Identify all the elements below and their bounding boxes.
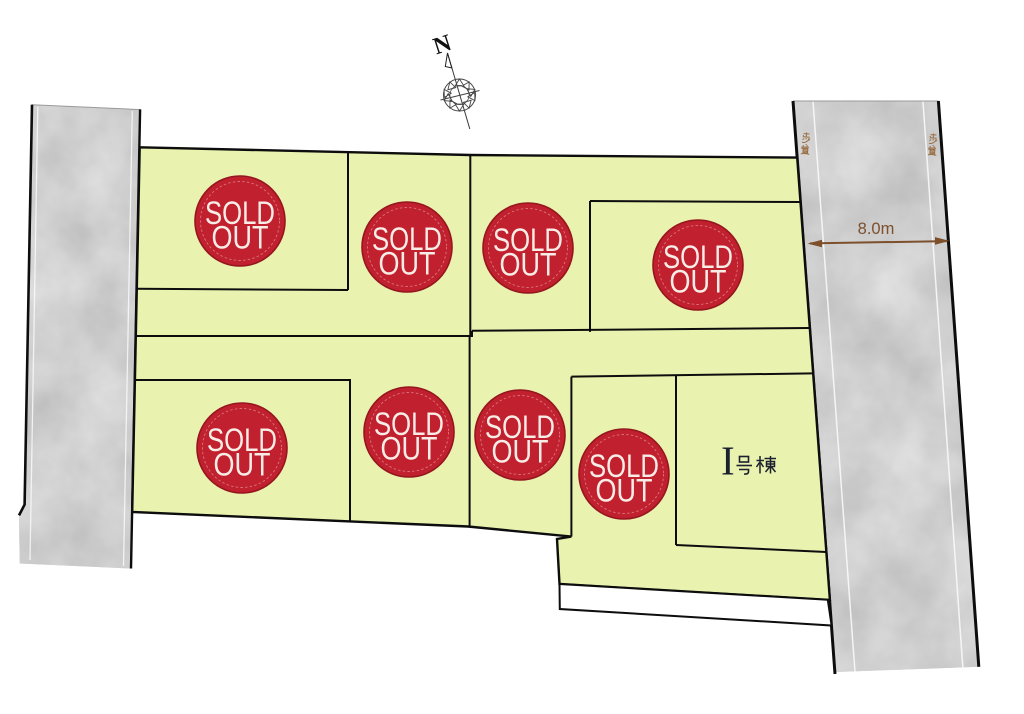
svg-text:N: N [430,30,455,60]
svg-text:I: I [721,438,735,484]
svg-text:8.0m: 8.0m [858,220,895,238]
